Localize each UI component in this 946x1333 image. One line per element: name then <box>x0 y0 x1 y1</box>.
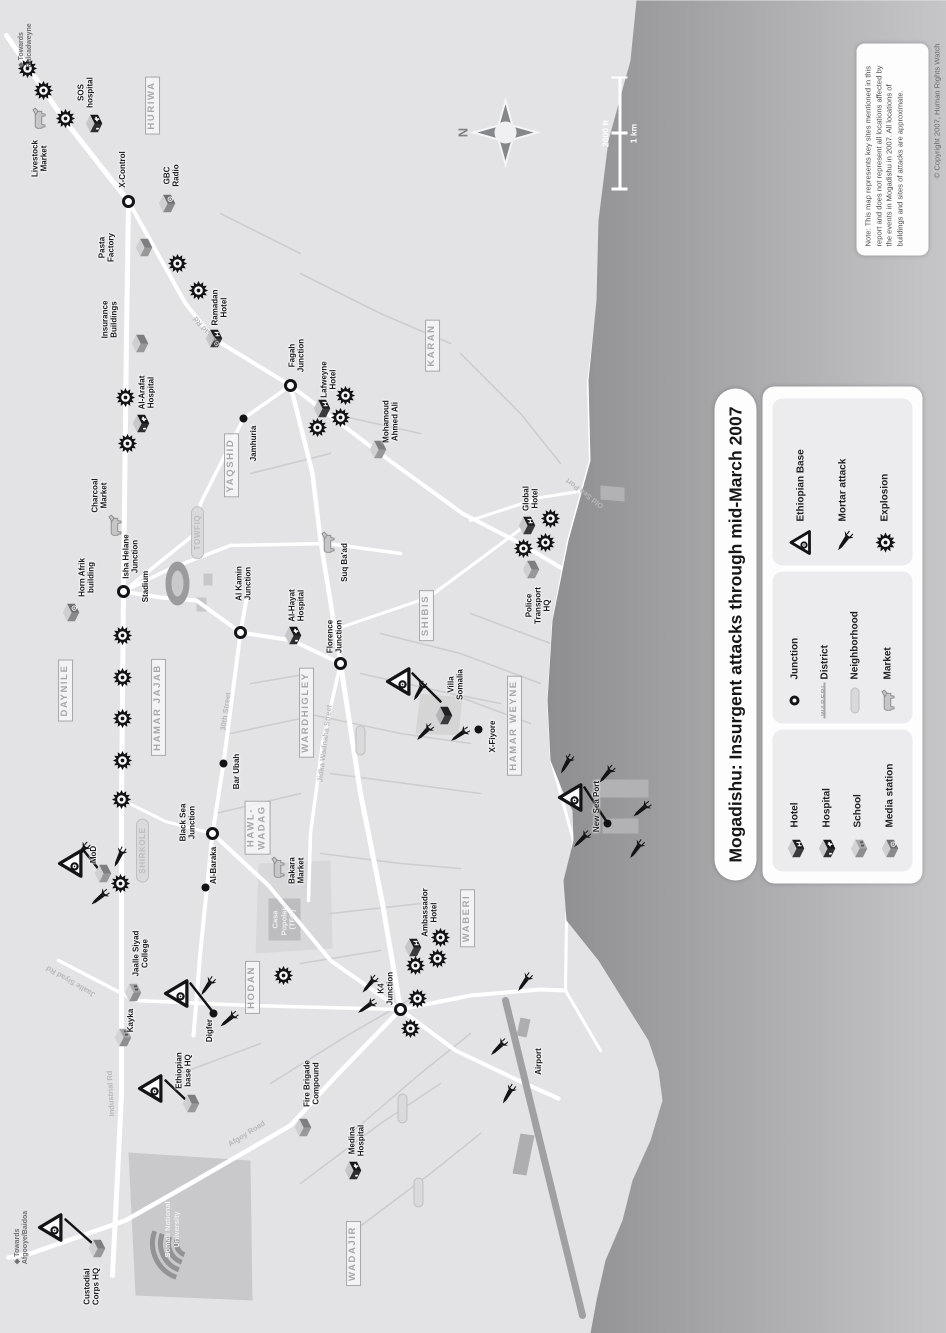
hotel-icon-lafweyne-hotel <box>311 397 331 419</box>
legend-label: Ethiopian Base <box>795 449 806 521</box>
road-label-industrial-rd: Industrial Rd <box>104 1070 115 1116</box>
legend-label: Neighborhood <box>849 611 860 679</box>
note-line: report and does not represent all locati… <box>874 52 885 246</box>
junction-marker-isha-helane-junction <box>117 585 130 598</box>
poi-dot-x-fiyore <box>474 725 482 733</box>
hospital-icon-sos-hospital <box>83 112 103 134</box>
media-station-icon <box>879 834 899 862</box>
junction-label-al-kamin-junction: Al KaminJunction <box>235 566 253 601</box>
legend-item-hospital: Hospital <box>816 738 836 862</box>
explosion-icon <box>400 1018 421 1039</box>
junction-marker-x-control <box>122 195 135 208</box>
legend-label: Market <box>882 647 893 679</box>
poi-dot-jamhuria <box>239 414 247 422</box>
junction-marker-black-sea-junction <box>206 827 219 840</box>
mortar-attack-icon <box>568 828 592 853</box>
hospital-icon <box>816 834 836 862</box>
poi-dot-bar-ubah <box>219 759 227 767</box>
junction-icon <box>789 686 799 714</box>
mortar-attack-icon <box>553 753 577 778</box>
site-label-jaalle-siyad-college: Jaalle SiyadCollege <box>132 930 150 976</box>
legend-label: Hospital <box>821 788 832 827</box>
mortar-attack-icon <box>194 975 218 1000</box>
note-line: buildings and sites of attacks are appro… <box>895 52 906 246</box>
explosion-icon <box>111 789 132 810</box>
legend-group-features: Junction WABERI District Neighborhood Ma… <box>772 571 912 723</box>
building-icon-ethiopian-base-hq <box>180 1092 200 1114</box>
mortar-attack-icon <box>485 1036 509 1061</box>
ethiopian-base-icon <box>788 528 812 556</box>
junction-label-florence-junction: FlorenceJunction <box>326 619 344 652</box>
district-label-hamar-weyne: HAMAR WEYNE <box>507 675 522 775</box>
neighborhood-label-towfiq: TOWFIQ <box>191 505 204 558</box>
explosion-icon <box>330 407 351 428</box>
hospital-icon-medina-hospital <box>342 1159 362 1181</box>
legend-label: Junction <box>789 637 800 679</box>
poi-label-x-fiyore: X-Fiyore <box>489 720 498 752</box>
site-label-charcoal-market: CharcoalMarket <box>91 478 109 512</box>
explosion-icon <box>427 948 448 969</box>
site-label-suq-ba-ad: Suq Ba'ad <box>341 543 350 582</box>
hotel-icon-global-hotel <box>516 514 536 536</box>
site-label-bakara-market: BakaraMarket <box>288 857 306 884</box>
district-label-karan: KARAN <box>425 319 440 371</box>
explosion-icon <box>110 873 131 894</box>
junction-label-x-control: X-Control <box>119 151 128 187</box>
map-screenshot: HURIWAKARANYAQSHIDSHIBISHAMAR WEYNEHAMAR… <box>0 0 946 1333</box>
note-line: the events in Mogadishu in 2007. All loc… <box>884 52 895 246</box>
road-label-old-sea-port: Old Sea Port <box>563 476 604 510</box>
district-label-hodan: HODAN <box>245 961 260 1014</box>
legend-item-market: Market <box>879 580 895 714</box>
neighborhood-label-unreadable <box>397 1093 407 1123</box>
compass-north-label: N <box>455 94 470 170</box>
ethiopian-base-icon <box>162 978 190 1008</box>
junction-label-isha-helane-junction: Isha HelaneJunction <box>122 534 140 578</box>
building-icon-insurance-buildings <box>129 332 149 354</box>
neighborhood-label-shirkole: SHIRKOLE <box>136 818 149 882</box>
media-icon-horn-afrik-building <box>60 601 80 623</box>
ethiopian-base-icon <box>384 666 412 696</box>
junction-label-fagah-junction: FagahJunction <box>288 338 306 371</box>
legend-group-attacks: Ethiopian Base Mortar attack Explosion <box>772 398 912 565</box>
road-label-jidka-wadnaha-street: Jidka Wadnaha Street <box>315 704 333 782</box>
scale-label-km: 1 km <box>628 76 638 190</box>
explosion-icon <box>540 508 561 529</box>
neighborhood-label-unreadable <box>413 1177 423 1207</box>
mortar-attack-icon <box>215 1008 239 1033</box>
legend-label: School <box>852 794 863 827</box>
hospital-icon-al-hayat-hospital <box>282 624 302 646</box>
road-exit-icon: ◆ <box>18 62 25 67</box>
ethiopian-base-icon <box>56 848 84 878</box>
explosion-icon <box>307 417 328 438</box>
road-label-jaalle-siyad-rd: Jaalle Siyad Rd <box>44 963 96 998</box>
legend-label: Mortar attack <box>837 458 848 521</box>
note-panel: Note: This map represents key sites ment… <box>856 43 928 255</box>
ethiopian-base-icon <box>556 782 584 812</box>
explosion-icon <box>513 538 534 559</box>
explosion-icon <box>874 528 896 556</box>
note-line: Note: This map represents key sites ment… <box>863 52 874 246</box>
explosion-icon <box>407 988 428 1009</box>
explosion-icon <box>335 385 356 406</box>
site-label-kayka: Kayka <box>127 1008 136 1032</box>
junction-marker-florence-junction <box>334 657 347 670</box>
explosion-icon <box>55 108 76 129</box>
compass-rose: N <box>455 94 541 170</box>
copyright-text: © Copyright 2007, Human Rights Watch <box>932 43 941 255</box>
mortar-attack-icon <box>106 846 130 871</box>
mortar-attack-icon <box>495 1083 519 1108</box>
district-label-hamar-jajab: HAMAR JAJAB <box>151 659 166 756</box>
market-icon <box>879 686 895 714</box>
legend-item-junction: Junction <box>789 580 800 714</box>
poi-dot-sea-port-dot <box>603 819 611 827</box>
district-label-shibis: SHIBIS <box>419 589 434 640</box>
legend-item-district: WABERI District <box>819 580 830 714</box>
district-label-hawl-wadag: HAWL-WADAG <box>244 800 270 854</box>
hotel-icon <box>785 834 805 862</box>
site-label-al-hayat-hospital: Al-HayatHospital <box>288 589 306 621</box>
district-label-daynile: DAYNILE <box>58 659 73 721</box>
towards-label-afgooye-baidoa: ◆ TowardsAfgooye/Baidoa <box>14 1210 31 1263</box>
explosion-icon <box>112 750 133 771</box>
district-label-wardhigley: WARDHIGLEY <box>299 667 314 757</box>
legend-label: Hotel <box>789 802 800 827</box>
mortar-attack-icon <box>446 723 470 748</box>
site-label-airport: Airport <box>535 1048 544 1075</box>
scale-tick <box>611 188 627 191</box>
media-icon-gbc-radio <box>156 192 176 214</box>
site-label-livestock-market: LivestockMarket <box>31 140 49 177</box>
poi-label-al-baraka: Al-Baraka <box>210 846 219 883</box>
explosion-icon <box>33 80 54 101</box>
market-icon-charcoal-market <box>106 513 122 537</box>
neighborhood-sample-icon <box>850 686 859 714</box>
site-label-villa-somalia: VillaSomalia <box>447 669 465 700</box>
poi-label-jamhuria: Jamhuria <box>250 425 259 461</box>
site-label-ethiopian-base-hq: Ethiopianbase HQ <box>175 1052 193 1088</box>
site-label-pasta-factory: PastaFactory <box>98 233 116 262</box>
market-icon-livestock-market <box>30 106 46 130</box>
site-label-al-arafat-hospital: Al-ArafatHospital <box>138 375 156 409</box>
legend-item-explosion: Explosion <box>874 407 896 556</box>
explosion-icon <box>112 708 133 729</box>
site-label-mohamoud-ahmed-ali: MohamoudAhmed Ali <box>382 400 400 443</box>
legend-label: District <box>819 645 830 679</box>
site-label-insurance-buildings: InsuranceBuildings <box>101 300 119 338</box>
towards-label-balcadweyne: ◆ TowardsBalcadweyne <box>18 23 35 67</box>
scale-tick <box>611 76 627 79</box>
scale-label-ft: 2000 ft <box>600 76 610 190</box>
poi-dot-al-baraka <box>201 883 209 891</box>
school-icon <box>848 834 868 862</box>
school-icon-jaalle-siyad-college <box>122 981 142 1003</box>
market-icon-suq-ba-ad <box>319 530 335 554</box>
explosion-icon <box>430 927 451 948</box>
building-icon-pasta-factory <box>133 236 153 258</box>
site-label-custodial-corps-hq: CustodialCorps HQ <box>83 1267 101 1304</box>
mortar-attack-icon <box>353 995 377 1020</box>
legend-item-neighborhood: Neighborhood <box>849 580 860 714</box>
legend-group-facilities: Hotel Hospital School Media station <box>772 729 912 871</box>
map-title-panel: Mogadishu: Insurgent attacks through mid… <box>714 388 756 880</box>
district-label-waberi: WABERI <box>460 889 475 947</box>
junction-marker-k4-junction <box>394 1003 407 1016</box>
explosion-icon <box>405 955 426 976</box>
explosion-icon <box>112 625 133 646</box>
site-label-fire-brigade-compound: Fire BrigadeCompound <box>303 1060 321 1107</box>
site-label-ramadan-hotel: RamadanHotel <box>211 289 229 325</box>
legend-label: Media station <box>884 763 895 827</box>
explosion-icon <box>535 532 556 553</box>
compass-star-icon <box>469 94 541 170</box>
site-label-global-hotel: GlobalHotel <box>522 486 540 511</box>
district-label-wadajir: WADAJIR <box>346 1220 361 1285</box>
junction-label-black-sea-junction: Black SeaJunction <box>179 803 197 841</box>
mortar-attack-icon <box>628 798 652 823</box>
mortar-attack-icon <box>623 838 647 863</box>
explosion-icon <box>188 280 209 301</box>
legend-item-ethiopian-base: Ethiopian Base <box>788 407 812 556</box>
legend-item-media-station: Media station <box>879 738 899 862</box>
poi-label-bar-ubah: Bar Ubah <box>233 753 242 789</box>
site-label-stadium: Stadium <box>142 570 151 602</box>
market-icon-bakara-market <box>269 855 285 879</box>
building-icon-custodial-corps-hq <box>86 1237 106 1259</box>
explosion-icon <box>112 667 133 688</box>
mortar-attack-icon <box>86 886 110 911</box>
mortar-attack-icon <box>593 763 617 788</box>
district-label-huriwa: HURIWA <box>145 76 160 134</box>
page-title: Mogadishu: Insurgent attacks through mid… <box>725 406 746 862</box>
neighborhood-label-unreadable <box>355 725 365 755</box>
explosion-icon <box>115 387 136 408</box>
legend-panel: Hotel Hospital School Media station <box>762 386 922 883</box>
junction-marker-fagah-junction <box>284 379 297 392</box>
building-icon-fire-brigade-compound <box>292 1116 312 1138</box>
area-label-casa: CasaPopolare(TFG) <box>271 903 297 935</box>
scale-bar: 2000 ft 1 km <box>600 76 640 190</box>
ethiopian-base-icon <box>136 1073 164 1103</box>
explosion-icon <box>273 965 294 986</box>
map-canvas: HURIWAKARANYAQSHIDSHIBISHAMAR WEYNEHAMAR… <box>0 0 946 1333</box>
area-label-somali-national: Somali NationalUniversity <box>163 1201 180 1257</box>
junction-marker-al-kamin-junction <box>234 626 247 639</box>
building-icon-police-transport-hq <box>520 558 540 580</box>
explosion-icon <box>167 253 188 274</box>
legend-item-mortar-attack: Mortar attack <box>831 407 855 556</box>
legend-label: Explosion <box>879 473 890 521</box>
mortar-attack-icon <box>831 528 855 556</box>
legend-item-school: School <box>848 738 868 862</box>
ethiopian-base-icon <box>36 1212 64 1242</box>
road-label-afgoy-road: Afgoy Road <box>226 1118 266 1148</box>
site-label-police-transport-hq: PoliceTransportHQ <box>525 587 551 624</box>
road-label-30th-street: 30th Street <box>218 691 232 731</box>
district-sample-icon: WABERI <box>823 686 825 714</box>
explosion-icon <box>117 433 138 454</box>
site-label-gbc-radio: GBCRadio <box>163 164 181 186</box>
site-label-sos-hospital: SOShospital <box>77 77 95 108</box>
hospital-icon-al-arafat-hospital <box>130 412 150 434</box>
scale-tick <box>611 132 627 135</box>
mortar-attack-icon <box>411 721 435 746</box>
legend-item-hotel: Hotel <box>785 738 805 862</box>
mortar-attack-icon <box>511 971 535 996</box>
site-label-horn-afrik-building: Horn Afrikbuilding <box>78 558 96 597</box>
road-exit-icon: ◆ <box>14 1258 21 1263</box>
site-label-medina-hospital: MedinaHospital <box>348 1124 366 1156</box>
district-label-yaqshid: YAQSHID <box>224 433 239 497</box>
